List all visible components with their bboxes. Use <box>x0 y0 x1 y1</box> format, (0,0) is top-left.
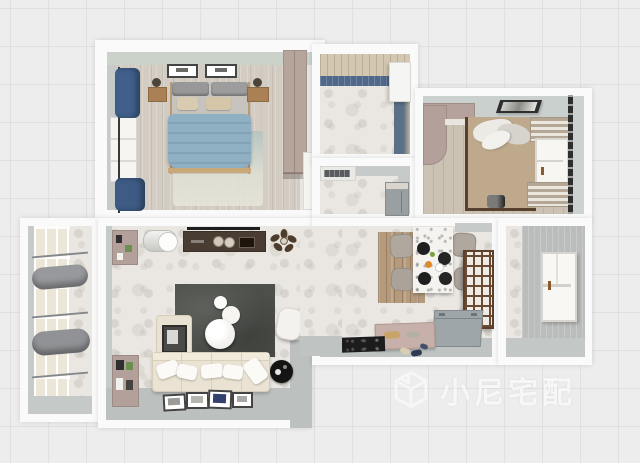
console-speaker <box>239 237 255 248</box>
dining-chair[interactable] <box>390 267 415 291</box>
wardrobe-shadow <box>283 172 305 179</box>
bedroom2-wall-picture[interactable] <box>496 100 542 113</box>
cylinder-opening <box>158 232 178 252</box>
duvet-blue <box>168 114 251 168</box>
picture-art <box>501 102 538 111</box>
room-balcony[interactable] <box>20 218 100 422</box>
floor-frame[interactable] <box>208 390 233 410</box>
nightstand-right[interactable] <box>247 87 269 102</box>
floorplan-canvas: 小尼宅配 <box>0 0 640 463</box>
balcony-floor <box>28 396 92 414</box>
window-mullion <box>111 138 136 140</box>
sideroom-floor <box>506 338 585 357</box>
plant-right <box>253 78 262 87</box>
window-handle <box>541 167 544 175</box>
headboard-cushion-left <box>172 82 209 96</box>
frame-art <box>191 396 203 403</box>
bathroom-floor <box>320 86 394 154</box>
storage-cylinder[interactable] <box>143 230 177 252</box>
plant-small <box>126 362 133 370</box>
curtain-blue-top[interactable] <box>115 68 140 118</box>
room-side[interactable] <box>498 218 592 365</box>
leaning-frame[interactable] <box>162 325 187 353</box>
bed-foot-rail <box>168 168 251 173</box>
tv-console[interactable] <box>183 231 266 252</box>
fruit-green <box>430 252 435 257</box>
plate <box>418 272 431 285</box>
bed[interactable] <box>170 82 250 174</box>
doormat[interactable] <box>337 336 385 353</box>
chest-handle <box>471 313 477 316</box>
frame-art <box>237 396 247 402</box>
table-item <box>275 369 281 375</box>
bench-cushion <box>406 331 420 337</box>
window-handle <box>548 281 551 290</box>
table-item <box>283 365 287 369</box>
steel-cabinet[interactable] <box>385 182 409 216</box>
frame-art <box>215 68 227 72</box>
bedroom2-right-wall <box>573 96 584 214</box>
vent-unit[interactable] <box>320 166 356 181</box>
dining-table[interactable] <box>413 227 453 293</box>
chest-lid-line <box>435 318 482 319</box>
fruit-orange <box>425 261 432 268</box>
sideroom-window[interactable] <box>541 252 577 322</box>
bathroom-door[interactable] <box>389 62 411 102</box>
storage-chest[interactable] <box>432 310 484 347</box>
wardrobe-door-split <box>294 51 295 173</box>
frame-art <box>213 394 226 403</box>
window-mullion <box>556 254 558 284</box>
ceiling-fan[interactable] <box>270 229 298 253</box>
frame-mat <box>167 330 178 344</box>
bookshelf-top[interactable] <box>112 230 138 265</box>
desk-return-cabinet[interactable] <box>423 105 447 165</box>
dining-chair[interactable] <box>389 233 415 259</box>
cabinet-handle <box>401 191 402 213</box>
floor-frame[interactable] <box>163 393 187 411</box>
sofa-pillow <box>176 363 198 381</box>
window-sash <box>537 160 563 162</box>
curtain-blue-bottom[interactable] <box>115 178 145 211</box>
pillow-left <box>177 97 198 110</box>
plate <box>439 272 452 285</box>
sofa[interactable] <box>152 352 270 392</box>
frame-art <box>176 68 188 72</box>
decor-plate <box>224 237 235 248</box>
wall-tv[interactable] <box>187 227 260 230</box>
sofa-pillow <box>200 363 223 379</box>
bowl <box>435 263 444 272</box>
roman-shade-bottom[interactable] <box>527 182 570 207</box>
plate <box>417 242 430 255</box>
watermark-text: 小尼宅配 <box>440 368 576 412</box>
frame-art <box>168 398 180 406</box>
black-side-table[interactable] <box>270 360 293 383</box>
books <box>117 253 123 260</box>
wall-frame-right[interactable] <box>205 64 237 78</box>
books <box>116 378 123 390</box>
bench-cushion <box>384 331 400 339</box>
bedroom-window[interactable] <box>110 117 137 182</box>
dining-topright-wall <box>455 223 492 232</box>
console-decor <box>191 240 204 243</box>
chest-handle <box>439 313 445 316</box>
books <box>116 360 124 370</box>
headboard-cushion-right <box>211 82 248 96</box>
floor-pillow[interactable] <box>487 195 505 208</box>
plant-small <box>125 245 132 252</box>
room-living[interactable] <box>98 218 312 428</box>
room-second-bedroom[interactable] <box>415 88 592 222</box>
nesting-table-large[interactable] <box>205 319 235 349</box>
sofa-pillow <box>222 364 244 381</box>
openplan-floor-patch <box>300 226 342 336</box>
room-bathroom[interactable] <box>312 44 418 164</box>
floor-frame[interactable] <box>232 392 253 408</box>
window-mullion <box>111 160 136 162</box>
decor-plate <box>213 236 224 247</box>
room-kitchen-pass[interactable] <box>312 158 418 222</box>
floor-frame[interactable] <box>186 392 209 409</box>
bookshelf-bottom[interactable] <box>112 355 139 407</box>
books <box>126 380 133 390</box>
nightstand-left[interactable] <box>148 87 167 102</box>
room-master-bedroom[interactable] <box>95 40 325 218</box>
vent-slats <box>324 170 350 177</box>
watermark-cube-logo <box>390 369 432 411</box>
plant-left <box>152 78 161 87</box>
watermark: 小尼宅配 <box>390 368 576 412</box>
openplan-gray-patch <box>300 336 342 356</box>
bedroom2-window[interactable] <box>535 138 569 187</box>
wall-frame-left[interactable] <box>167 64 198 78</box>
pillow-right <box>206 97 231 110</box>
books <box>116 235 122 243</box>
